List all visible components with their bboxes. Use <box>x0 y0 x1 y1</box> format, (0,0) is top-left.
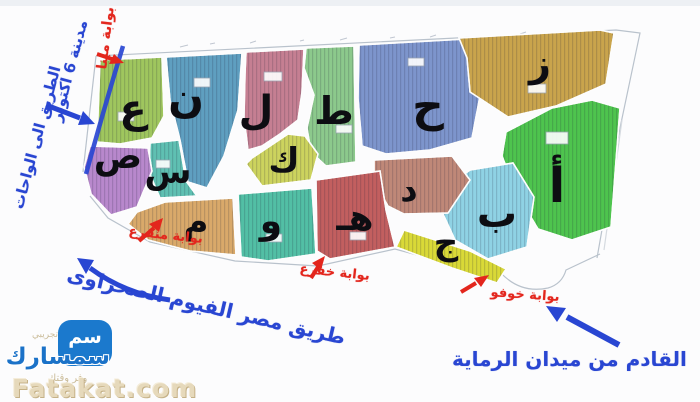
letter-lam: ل <box>239 88 274 134</box>
letter-zain: ز <box>527 41 551 85</box>
letter-heh: هـ <box>335 198 373 239</box>
semsarak-watermark: سم تجريبي سمسارك وفر وقتك Fatakat.com <box>12 318 187 402</box>
remaya-arrow <box>546 306 566 322</box>
letter-dal: د <box>400 170 417 210</box>
letter-sad: ص <box>94 136 142 177</box>
letter-waw: و <box>258 201 282 242</box>
letter-alif: أ <box>549 154 565 214</box>
letter-noon: ن <box>168 73 204 122</box>
semsarak-tagline-top: تجريبي <box>32 330 58 340</box>
screenshot-stage: ع ن ل ط ح ز أ ب ج د هـ و م س ص ك <box>0 0 700 402</box>
letter-hah: ح <box>412 81 444 132</box>
letter-ain: ع <box>119 86 148 132</box>
letter-jeem: ج <box>434 223 459 263</box>
letter-seen: س <box>145 152 192 192</box>
fatakat-watermark: Fatakat.com <box>12 374 197 402</box>
letter-tah: ط <box>314 89 353 133</box>
semsarak-logo-text: سمسارك <box>10 344 110 370</box>
label-from-remaya-square: القادم من ميدان الرماية <box>452 347 687 371</box>
west-road-arrow <box>78 111 95 125</box>
letter-beh: ب <box>477 191 517 237</box>
letter-kaf: ك <box>268 141 299 181</box>
